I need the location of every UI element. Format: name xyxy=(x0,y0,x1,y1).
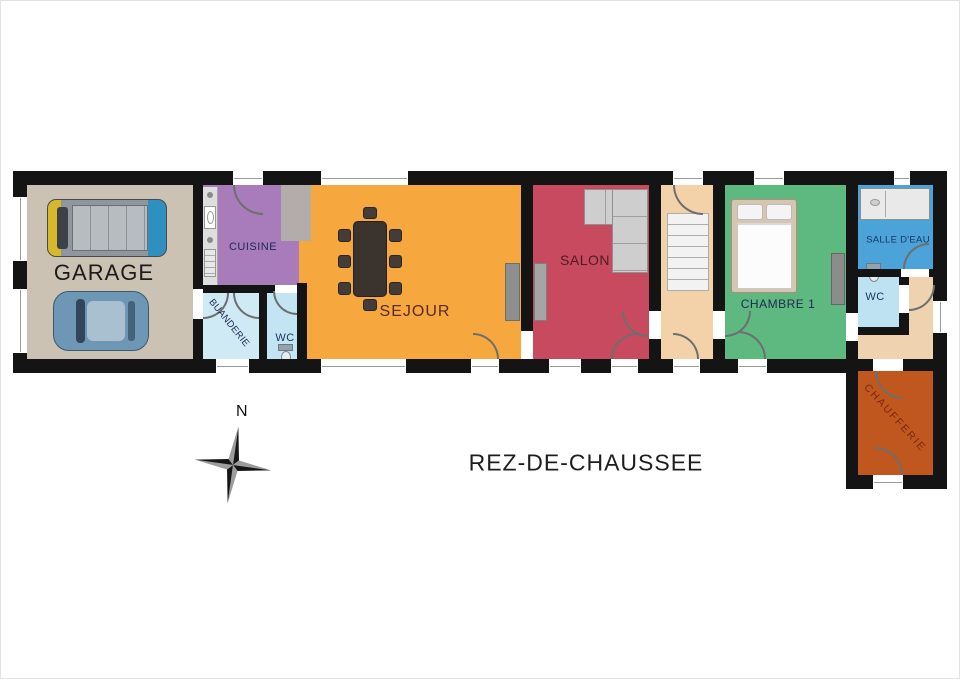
chair xyxy=(363,299,377,311)
toilet xyxy=(278,344,293,351)
corner-sofa xyxy=(612,189,648,273)
room-label-garage: GARAGE xyxy=(54,260,154,286)
door-opening xyxy=(233,171,263,185)
entry-door-opening xyxy=(673,171,703,185)
room-label-sejour: SEJOUR xyxy=(380,303,451,321)
window xyxy=(321,359,406,373)
window xyxy=(754,171,784,185)
door-opening xyxy=(873,359,903,371)
door-opening xyxy=(673,359,700,373)
car-rear-window xyxy=(128,301,135,341)
chair xyxy=(389,255,402,268)
kitchen-sink xyxy=(204,206,216,229)
kitchen-corner-counter xyxy=(281,185,311,241)
room-label-cuisine: CUISINE xyxy=(229,241,277,253)
kitchen-counter xyxy=(203,187,218,287)
interior-wall xyxy=(297,283,307,359)
room-sejour-floor xyxy=(299,185,521,359)
dining-table xyxy=(353,221,387,297)
window xyxy=(321,171,408,185)
window xyxy=(894,171,910,185)
shower-door-line xyxy=(885,191,886,217)
door-opening xyxy=(899,285,909,313)
chair xyxy=(338,229,351,242)
room-degagement-floor xyxy=(858,335,933,359)
room-label-chambre1: CHAMBRE 1 xyxy=(741,297,816,311)
door-opening xyxy=(901,269,929,277)
shower xyxy=(860,188,930,220)
wardrobe xyxy=(831,253,845,305)
sink-bowl xyxy=(207,211,214,224)
pillow xyxy=(737,204,763,220)
floor-plan: GARAGE CUISINE BUANDERIE WC SEJOUR SALON… xyxy=(0,0,960,679)
chair xyxy=(338,255,351,268)
plan-title: REZ-DE-CHAUSSEE xyxy=(469,450,704,477)
shower-drain xyxy=(870,199,880,206)
door-opening xyxy=(738,359,767,373)
compass-rose-icon xyxy=(189,421,277,509)
passage-opening xyxy=(521,331,533,359)
wall-unit xyxy=(505,263,520,321)
door-opening xyxy=(193,289,203,319)
chair xyxy=(338,282,351,295)
room-label-wc1: WC xyxy=(275,332,294,344)
door-opening xyxy=(713,311,725,339)
car xyxy=(53,291,149,351)
compass-north-label: N xyxy=(236,403,248,421)
chair xyxy=(363,207,377,219)
garage-door xyxy=(13,289,27,353)
interior-wall xyxy=(858,327,909,335)
window xyxy=(549,359,581,373)
interior-wall xyxy=(259,293,267,359)
chair xyxy=(389,282,402,295)
exterior-wall xyxy=(13,359,858,373)
door-opening xyxy=(846,313,858,341)
wall-unit xyxy=(534,263,547,321)
exterior-wall xyxy=(13,171,947,185)
room-label-salle-deau: SALLE D'EAU xyxy=(866,235,930,246)
chair xyxy=(389,229,402,242)
double-bed xyxy=(731,199,797,293)
stove xyxy=(204,249,216,277)
window xyxy=(216,359,249,373)
car-windshield xyxy=(76,299,85,343)
hob-knob xyxy=(207,237,213,243)
van-cargo-roof xyxy=(72,205,148,251)
car-roof xyxy=(87,301,125,341)
door-opening xyxy=(471,359,499,373)
door-opening xyxy=(873,475,903,489)
mattress xyxy=(737,223,792,289)
hob-knob xyxy=(207,192,213,198)
door-opening xyxy=(649,311,661,339)
exterior-wall xyxy=(846,359,858,489)
room-label-wc2: WC xyxy=(865,291,884,303)
garage-door xyxy=(13,197,27,261)
door-opening xyxy=(611,359,638,373)
staircase xyxy=(667,213,709,291)
window xyxy=(933,301,947,333)
van xyxy=(47,199,167,257)
room-label-salon: SALON xyxy=(560,252,610,268)
pillow xyxy=(766,204,792,220)
van-windshield xyxy=(57,207,68,249)
interior-wall xyxy=(193,185,203,359)
